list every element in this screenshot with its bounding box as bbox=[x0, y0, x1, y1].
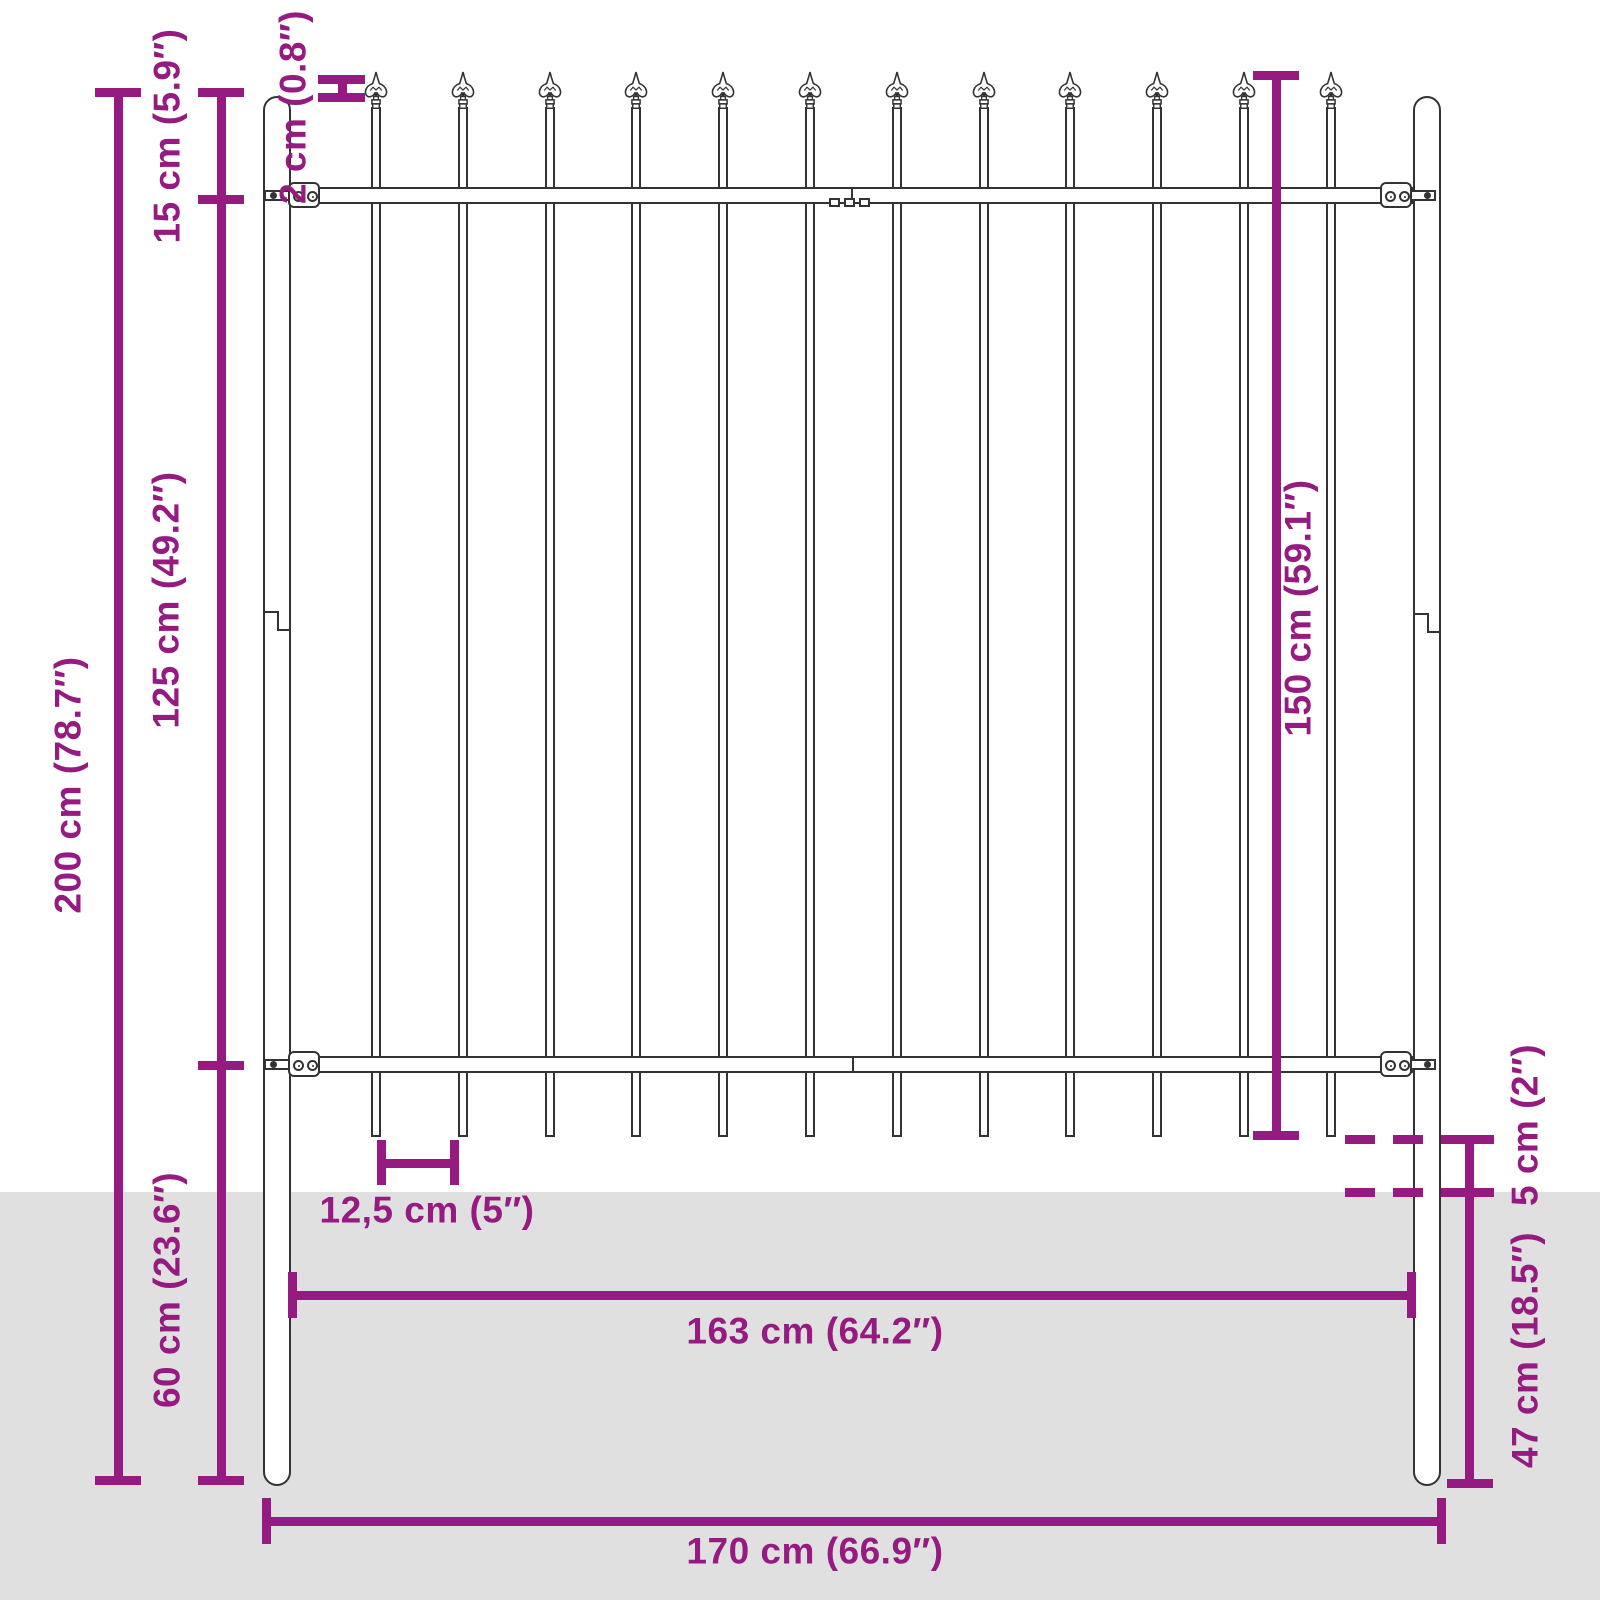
dim-line-outer-width bbox=[266, 1517, 1441, 1526]
dim-label-outer-width: 170 cm (66.9″) bbox=[686, 1533, 943, 1570]
dim-tick bbox=[198, 1476, 244, 1485]
dim-tick bbox=[1447, 1188, 1493, 1197]
dim-label-picket-top-offset: 2 cm (0.8″) bbox=[275, 10, 312, 204]
dim-label-inner-width: 163 cm (64.2″) bbox=[686, 1313, 943, 1350]
dim-tick bbox=[288, 1272, 297, 1318]
dim-label-picket-gap: 12,5 cm (5″) bbox=[320, 1192, 535, 1229]
dim-tick bbox=[262, 1498, 271, 1544]
dim-tick bbox=[95, 1476, 141, 1485]
dim-line-inner-width bbox=[292, 1291, 1411, 1300]
dim-tick bbox=[1253, 71, 1299, 80]
dim-label-ground-clearance: 5 cm (2″) bbox=[1507, 1044, 1544, 1206]
dim-label-mid-section: 125 cm (49.2″) bbox=[148, 471, 185, 728]
dim-bracket-2cm bbox=[338, 75, 347, 102]
dim-label-post-depth: 47 cm (18.5″) bbox=[1507, 1232, 1544, 1468]
dim-label-spear-section: 15 cm (5.9″) bbox=[149, 29, 186, 244]
dim-tick bbox=[1253, 1131, 1299, 1140]
dim-line-sections bbox=[217, 92, 226, 1480]
dim-tick bbox=[198, 195, 244, 204]
dim-tick bbox=[1447, 1135, 1493, 1144]
dim-tick bbox=[1447, 1479, 1493, 1488]
dim-tick bbox=[198, 1061, 244, 1070]
dim-tick bbox=[95, 88, 141, 97]
dim-label-below-rail: 60 cm (23.6″) bbox=[149, 1172, 186, 1408]
dim-label-panel-height: 150 cm (59.1″) bbox=[1280, 479, 1317, 736]
dim-tick bbox=[198, 88, 244, 97]
dim-tick bbox=[1407, 1272, 1416, 1318]
dim-line-picket-gap bbox=[381, 1159, 454, 1168]
dim-tick bbox=[1437, 1498, 1446, 1544]
dim-label-total-height: 200 cm (78.7″) bbox=[50, 656, 87, 913]
fence-dimension-diagram: 200 cm (78.7″) 15 cm (5.9″) 125 cm (49.2… bbox=[0, 0, 1600, 1600]
dim-line-total-height bbox=[114, 92, 123, 1480]
dimension-annotations: 200 cm (78.7″) 15 cm (5.9″) 125 cm (49.2… bbox=[0, 0, 1600, 1600]
